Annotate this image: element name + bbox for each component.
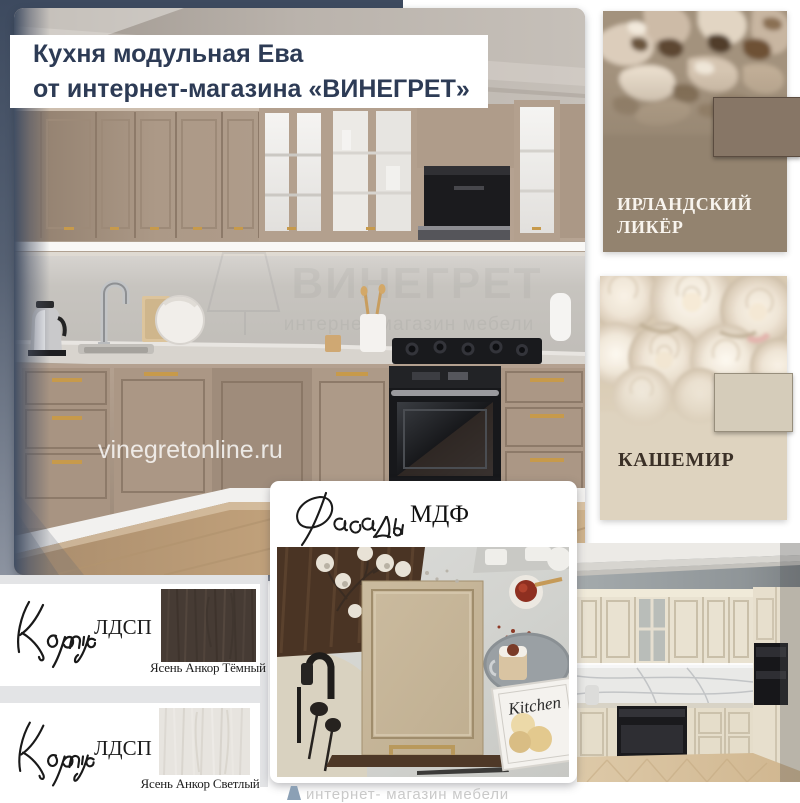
- svg-text:vinegretonline.ru: vinegretonline.ru: [98, 436, 283, 464]
- svg-text:интернет-магазин мебели: интернет-магазин мебели: [284, 314, 535, 335]
- svg-text:ВИНЕГРЕТ: ВИНЕГРЕТ: [291, 259, 542, 308]
